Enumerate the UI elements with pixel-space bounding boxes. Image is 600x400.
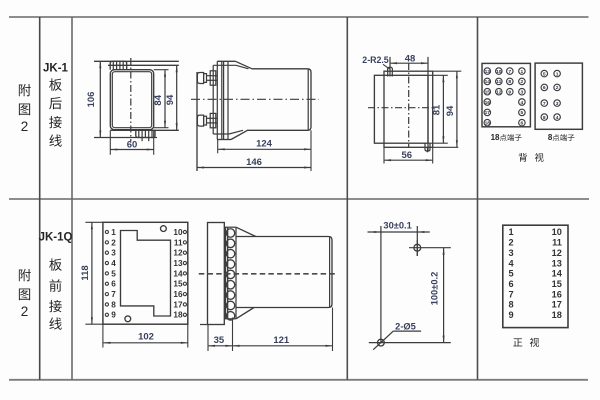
svg-text:4: 4 — [556, 115, 559, 121]
svg-text:18: 18 — [173, 311, 183, 320]
svg-text:9: 9 — [111, 311, 116, 320]
svg-text:15: 15 — [485, 89, 491, 95]
svg-text:2: 2 — [21, 304, 29, 319]
svg-text:30±0.1: 30±0.1 — [383, 221, 411, 231]
svg-text:5: 5 — [111, 269, 116, 278]
svg-text:15: 15 — [552, 279, 562, 289]
svg-text:102: 102 — [138, 332, 154, 343]
svg-text:5: 5 — [509, 269, 514, 279]
svg-text:2: 2 — [521, 79, 524, 85]
svg-text:5: 5 — [543, 71, 546, 77]
svg-text:3: 3 — [556, 101, 559, 107]
svg-text:18: 18 — [485, 120, 491, 126]
svg-text:9: 9 — [508, 89, 511, 95]
svg-text:3: 3 — [111, 249, 116, 258]
svg-text:121: 121 — [273, 335, 290, 346]
svg-text:3: 3 — [509, 248, 514, 258]
svg-text:7: 7 — [543, 101, 546, 107]
svg-text:12: 12 — [496, 89, 502, 95]
svg-text:17: 17 — [173, 300, 183, 309]
svg-text:81: 81 — [431, 104, 442, 115]
svg-text:56: 56 — [402, 150, 413, 161]
svg-text:13: 13 — [552, 258, 562, 268]
svg-text:7: 7 — [509, 289, 514, 299]
svg-text:17: 17 — [552, 300, 562, 310]
svg-text:JK-1: JK-1 — [43, 63, 69, 75]
svg-text:11: 11 — [174, 238, 183, 247]
svg-text:13: 13 — [485, 69, 491, 75]
svg-text:8: 8 — [543, 115, 546, 121]
svg-text:8: 8 — [548, 133, 553, 142]
svg-text:15: 15 — [173, 280, 183, 289]
svg-text:18: 18 — [491, 133, 500, 142]
svg-text:16: 16 — [552, 289, 562, 299]
svg-text:16: 16 — [173, 290, 183, 299]
svg-text:17: 17 — [485, 110, 491, 116]
svg-text:48: 48 — [405, 54, 416, 65]
svg-text:10: 10 — [496, 69, 502, 75]
svg-text:6: 6 — [521, 120, 524, 126]
svg-text:35: 35 — [214, 335, 225, 346]
svg-text:2: 2 — [556, 85, 559, 91]
svg-text:12: 12 — [552, 248, 562, 258]
svg-text:4: 4 — [509, 258, 515, 268]
svg-text:94: 94 — [445, 105, 456, 116]
svg-text:146: 146 — [246, 157, 262, 168]
svg-text:1: 1 — [111, 228, 116, 237]
svg-text:6: 6 — [111, 280, 116, 289]
svg-text:8: 8 — [508, 79, 511, 85]
svg-text:6: 6 — [543, 85, 546, 91]
svg-text:14: 14 — [173, 269, 183, 278]
svg-text:106: 106 — [86, 92, 97, 108]
svg-text:94: 94 — [165, 94, 176, 105]
svg-text:10: 10 — [173, 228, 183, 237]
svg-text:14: 14 — [485, 79, 491, 85]
svg-text:4: 4 — [521, 100, 524, 106]
svg-text:7: 7 — [111, 290, 116, 299]
svg-text:118: 118 — [80, 265, 91, 280]
svg-text:16: 16 — [485, 100, 491, 106]
svg-text:11: 11 — [552, 238, 562, 248]
svg-text:1: 1 — [521, 69, 524, 75]
svg-text:8: 8 — [111, 300, 116, 309]
svg-text:18: 18 — [552, 310, 562, 320]
svg-text:11: 11 — [496, 79, 501, 85]
svg-text:124: 124 — [256, 139, 273, 150]
svg-text:9: 9 — [509, 310, 514, 320]
svg-text:1: 1 — [509, 227, 514, 237]
svg-text:1: 1 — [556, 71, 559, 77]
svg-text:3: 3 — [521, 89, 524, 95]
svg-text:8: 8 — [509, 300, 514, 310]
svg-text:6: 6 — [509, 279, 514, 289]
svg-text:JK-1Q: JK-1Q — [39, 232, 73, 244]
svg-text:10: 10 — [552, 227, 562, 237]
svg-text:2-R2.5: 2-R2.5 — [362, 55, 389, 65]
svg-text:12: 12 — [173, 249, 183, 258]
svg-text:84: 84 — [153, 94, 164, 105]
svg-text:5: 5 — [521, 110, 524, 116]
svg-text:100±0.2: 100±0.2 — [429, 272, 439, 306]
svg-text:60: 60 — [127, 140, 138, 151]
svg-text:2: 2 — [111, 238, 116, 247]
svg-text:2-Ø5: 2-Ø5 — [395, 322, 416, 332]
svg-text:2: 2 — [509, 238, 514, 248]
svg-text:4: 4 — [111, 259, 116, 268]
svg-text:14: 14 — [552, 269, 563, 279]
svg-text:7: 7 — [508, 69, 511, 75]
svg-text:13: 13 — [173, 259, 183, 268]
svg-text:2: 2 — [21, 119, 29, 134]
